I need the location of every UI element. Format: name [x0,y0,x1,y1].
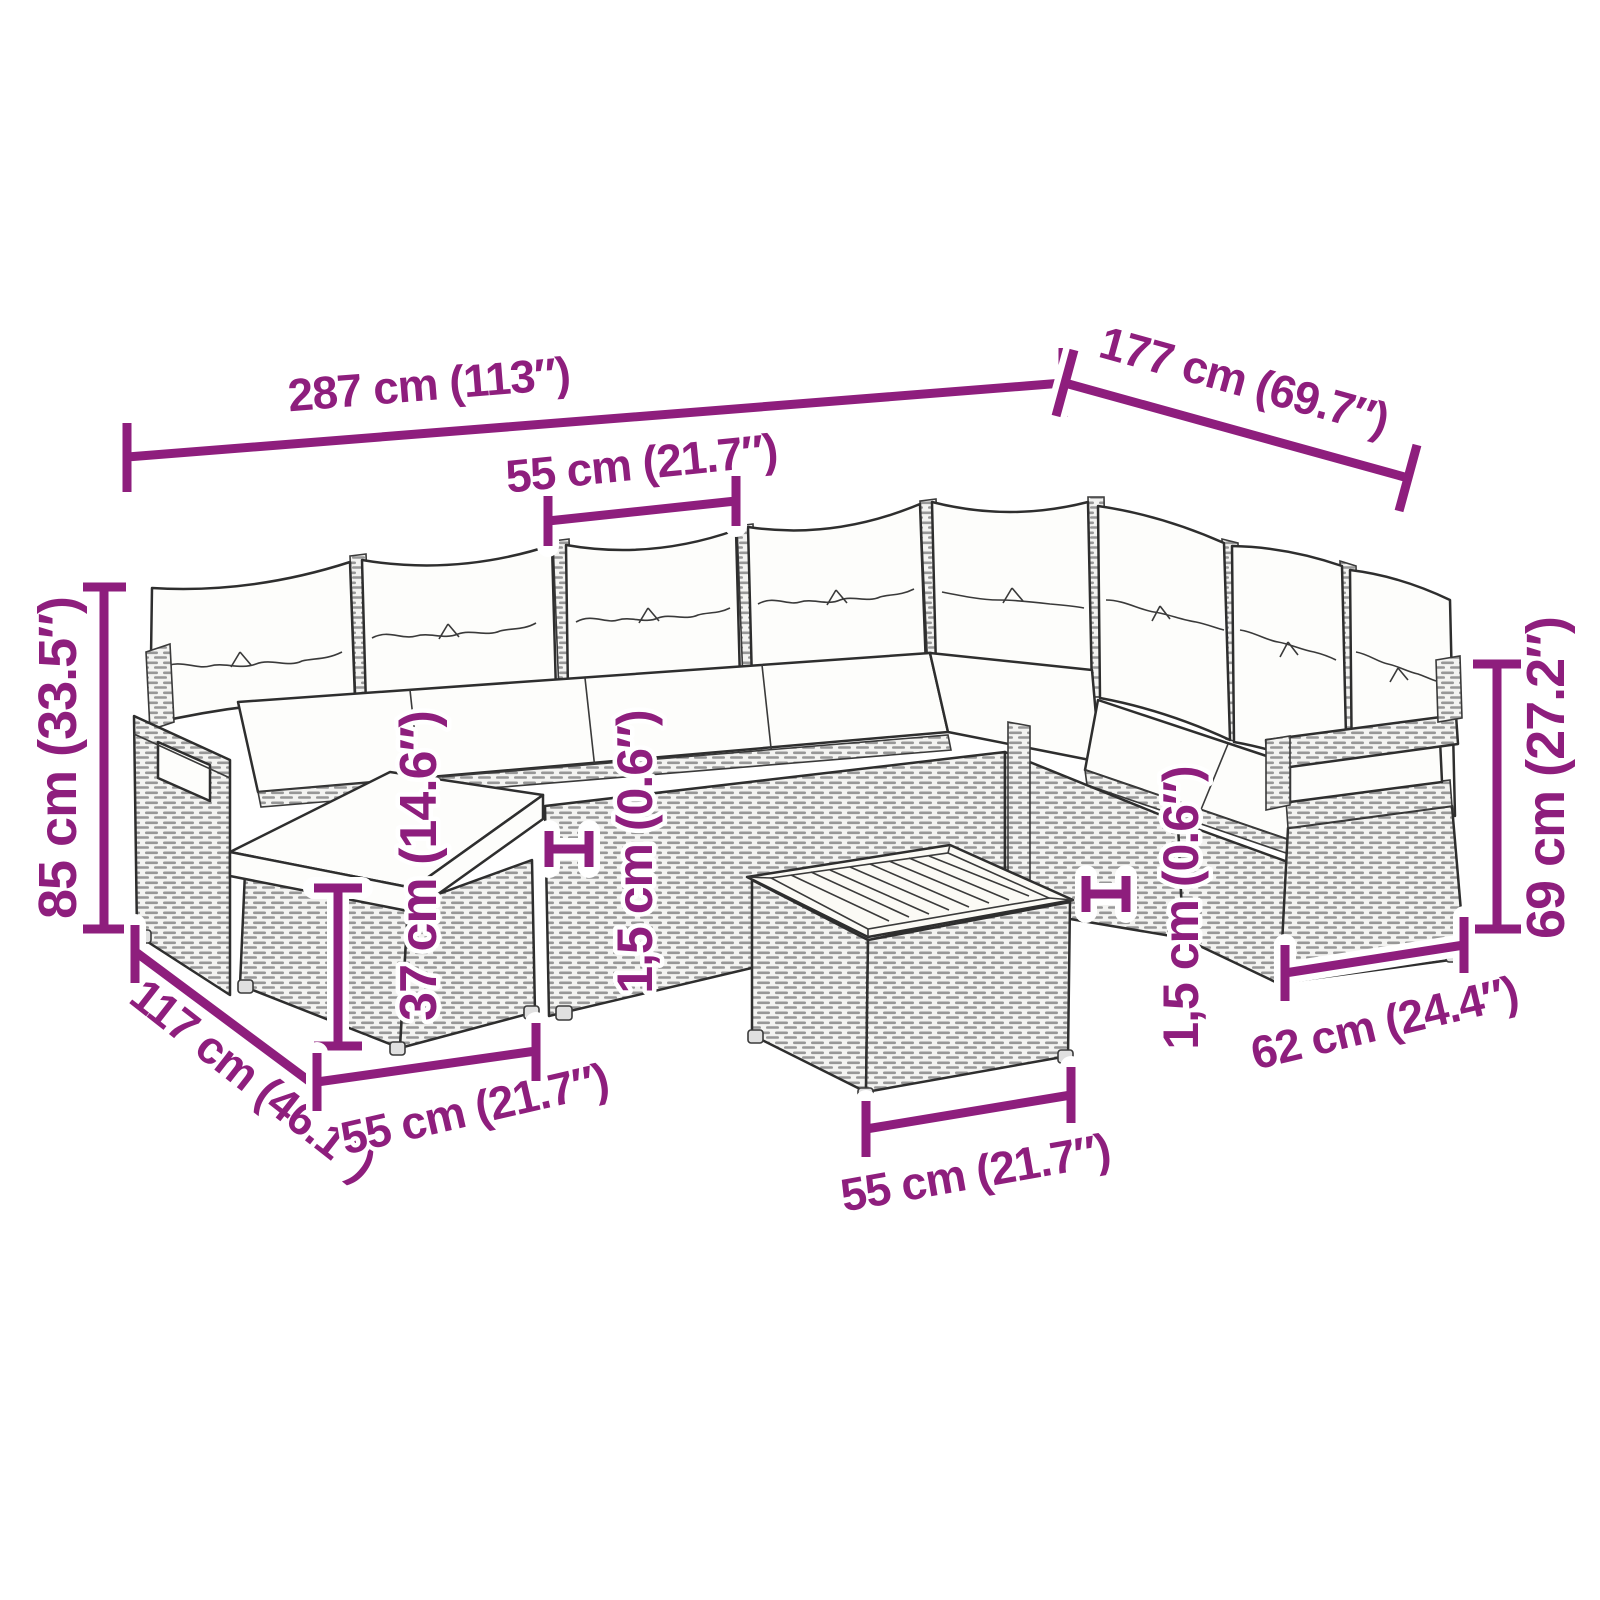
dim-overall-depth: 177 cm (69.7″) [1056,316,1417,511]
dim-overall-height: 85 cm (33.5″) [28,587,126,929]
coffee-table [747,845,1073,1101]
dim-cushion-thickness-left-label: 1,5 cm (0.6″) [607,710,663,993]
dim-overall-height-label: 85 cm (33.5″) [28,597,88,919]
dim-cushion-thickness-right-label: 1,5 cm (0.6″) [1153,766,1209,1049]
dim-seat-width: 55 cm (21.7″) [503,423,779,546]
footstool [230,772,543,1055]
dim-overall-width-label: 287 cm (113″) [286,347,572,422]
dim-armrest-height: 69 cm (27.2″) [1473,617,1576,939]
dim-armrest-height-label: 69 cm (27.2″) [1516,617,1576,939]
dim-footstool-height-label: 37 cm (14.6″) [390,711,448,1021]
product-dimension-diagram: 287 cm (113″) 177 cm (69.7″) 55 cm (21.7… [0,0,1600,1600]
